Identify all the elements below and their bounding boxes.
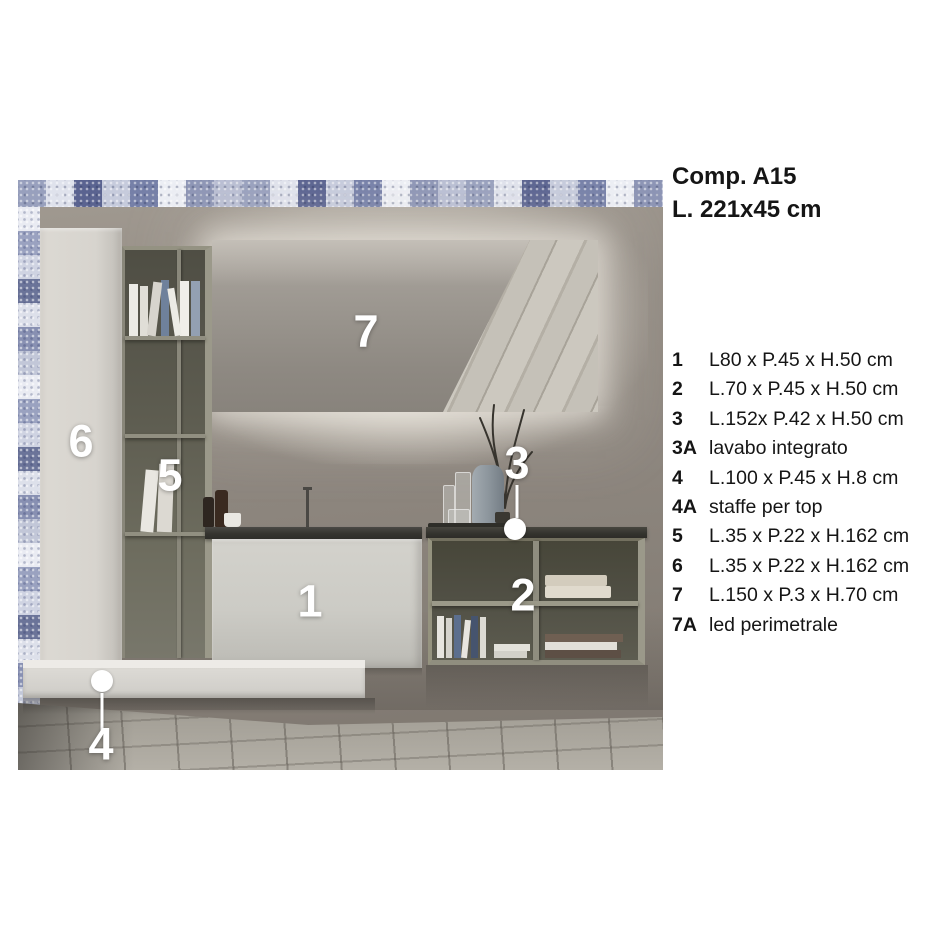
callout-3-basin-top: 3 [504, 441, 529, 486]
spec-number: 2 [672, 375, 709, 404]
shelf-board [125, 336, 205, 340]
spec-row: 7 L.150 x P.3 x H.70 cm [672, 581, 909, 610]
spec-number: 4 [672, 464, 709, 493]
spec-list: 1 L80 x P.45 x H.50 cm 2 L.70 x P.45 x H… [672, 346, 909, 640]
open-shelf-unit-item-2 [428, 538, 645, 665]
product-photo: 7 6 5 1 2 3 4 [18, 180, 663, 770]
book-flat [545, 634, 623, 642]
spec-description: L80 x P.45 x H.50 cm [709, 346, 893, 375]
book-spine [480, 617, 486, 658]
spec-description: lavabo integrato [709, 434, 848, 463]
spec-number: 5 [672, 522, 709, 551]
bottom-shelf-item-4-front [23, 668, 365, 698]
callout-7-mirror: 7 [353, 309, 378, 354]
callout-3-leader-line [516, 485, 519, 518]
book-flat [494, 644, 530, 651]
callout-6-tall-cabinet: 6 [68, 419, 93, 464]
catalog-page: 7 6 5 1 2 3 4 Comp. A15 L. 221x45 cm 1 L… [0, 0, 950, 950]
shelf-top [426, 527, 647, 538]
shelf-board [125, 532, 205, 536]
callout-5-shelf-left: 5 [157, 453, 182, 498]
callout-4-dot [91, 670, 113, 692]
spec-number: 4A [672, 493, 709, 522]
spec-number: 3A [672, 434, 709, 463]
towel [545, 575, 607, 586]
towel [545, 586, 611, 598]
shelf-board [125, 434, 205, 438]
faucet-spout [303, 487, 312, 490]
book-spine [191, 281, 200, 336]
book-spine [461, 620, 471, 658]
callout-3-dot [504, 518, 526, 540]
led-glow-under-mirror [188, 406, 618, 470]
spec-row: 2 L.70 x P.45 x H.50 cm [672, 375, 909, 404]
spec-row: 4 L.100 x P.45 x H.8 cm [672, 464, 909, 493]
composition-header: Comp. A15 L. 221x45 cm [672, 160, 821, 226]
faucet [306, 487, 309, 528]
spec-description: L.150 x P.3 x H.70 cm [709, 581, 898, 610]
spec-row: 6 L.35 x P.22 x H.162 cm [672, 552, 909, 581]
spec-description: L.100 x P.45 x H.8 cm [709, 464, 898, 493]
book-flat [545, 642, 617, 650]
spec-description: staffe per top [709, 493, 822, 522]
book-spine [180, 281, 189, 336]
bottom-shelf-item-4-top [23, 660, 365, 668]
spec-row: 1 L80 x P.45 x H.50 cm [672, 346, 909, 375]
book-spine [437, 616, 444, 658]
spec-row: 4A staffe per top [672, 493, 909, 522]
spec-number: 3 [672, 405, 709, 434]
callout-2-shelf-right: 2 [510, 573, 535, 618]
books-group [437, 613, 493, 658]
wall-shadow [426, 665, 648, 707]
book-flat [545, 650, 621, 658]
book-spine [454, 615, 461, 658]
spec-row: 3A lavabo integrato [672, 434, 909, 463]
stacked-books [545, 634, 625, 658]
spec-description: L.70 x P.45 x H.50 cm [709, 375, 898, 404]
book-spine [129, 284, 138, 336]
spec-row: 3 L.152x P.42 x H.50 cm [672, 405, 909, 434]
patterned-tile-border-top [18, 180, 663, 207]
book-spine [147, 282, 163, 337]
book-flat [494, 651, 527, 658]
spec-number: 7 [672, 581, 709, 610]
spec-description: L.35 x P.22 x H.162 cm [709, 552, 909, 581]
books-group [129, 274, 207, 336]
spec-description: led perimetrale [709, 611, 838, 640]
spec-number: 6 [672, 552, 709, 581]
spec-row: 5 L.35 x P.22 x H.162 cm [672, 522, 909, 551]
callout-4-bottom-shelf: 4 [88, 722, 113, 767]
mirror-item-7 [212, 240, 598, 412]
composition-size: L. 221x45 cm [672, 193, 821, 226]
spec-description: L.35 x P.22 x H.162 cm [709, 522, 909, 551]
spec-row: 7A led perimetrale [672, 611, 909, 640]
book-spine [471, 616, 478, 658]
book-spine [446, 618, 452, 658]
stacked-books [494, 644, 530, 658]
dark-bottle [203, 497, 214, 527]
cup [224, 513, 241, 527]
spec-number: 7A [672, 611, 709, 640]
basin-top-item-3 [205, 527, 422, 539]
bottom-shelf-shadow [23, 698, 375, 714]
folded-towels [545, 575, 611, 599]
spec-number: 1 [672, 346, 709, 375]
spec-description: L.152x P.42 x H.50 cm [709, 405, 904, 434]
board [140, 470, 158, 533]
callout-1-vanity: 1 [297, 579, 322, 624]
composition-title: Comp. A15 [672, 160, 821, 193]
